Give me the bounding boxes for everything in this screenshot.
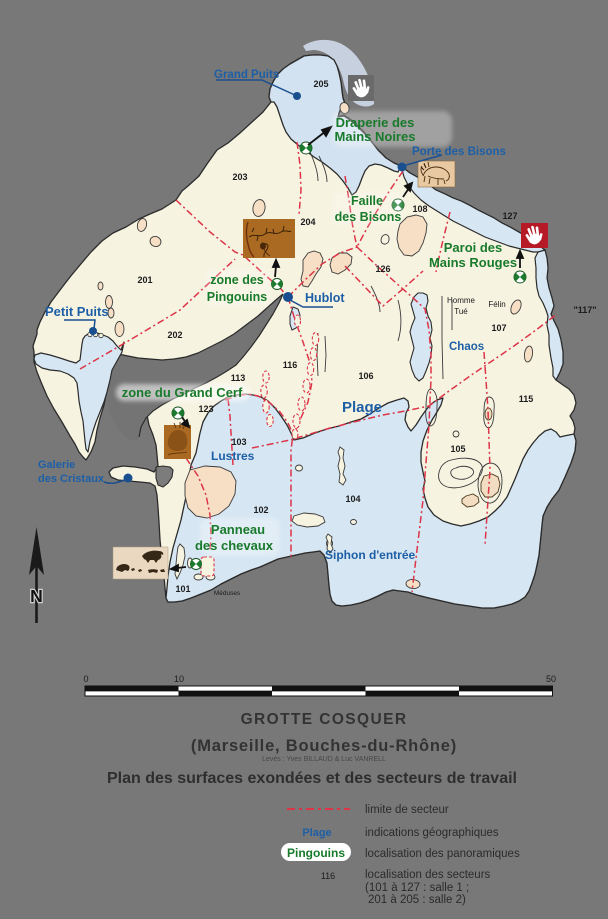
- svg-text:Grand Puits: Grand Puits: [214, 69, 279, 81]
- svg-text:Pingouins: Pingouins: [287, 846, 345, 860]
- svg-text:116: 116: [321, 871, 335, 881]
- svg-text:Chaos: Chaos: [449, 341, 484, 353]
- svg-text:202: 202: [167, 330, 182, 340]
- svg-text:Levés : Yves BILLAUD & Luc VAN: Levés : Yves BILLAUD & Luc VANRELL: [262, 756, 386, 763]
- svg-text:Mains Noires: Mains Noires: [335, 129, 416, 144]
- svg-text:limite de secteur: limite de secteur: [365, 804, 449, 816]
- svg-text:des chevaux: des chevaux: [195, 538, 274, 553]
- svg-text:105: 105: [450, 444, 465, 454]
- svg-text:"117": "117": [573, 305, 596, 315]
- svg-text:203: 203: [232, 172, 247, 182]
- svg-text:indications géographiques: indications géographiques: [365, 827, 499, 839]
- svg-text:Plage: Plage: [302, 827, 331, 839]
- svg-text:Pingouins: Pingouins: [207, 290, 267, 304]
- svg-text:Siphon d'entrée: Siphon d'entrée: [325, 548, 416, 562]
- svg-text:Plan des surfaces exondées et: Plan des surfaces exondées et des secteu…: [107, 770, 517, 787]
- svg-text:101: 101: [175, 584, 190, 594]
- svg-text:N: N: [30, 586, 43, 606]
- svg-text:Mains Rouges: Mains Rouges: [429, 255, 517, 270]
- svg-text:123: 123: [198, 404, 213, 414]
- svg-text:Tué: Tué: [454, 307, 468, 316]
- svg-text:113: 113: [231, 373, 246, 383]
- svg-text:Hublot: Hublot: [305, 291, 345, 305]
- svg-text:201: 201: [137, 275, 152, 285]
- svg-text:108: 108: [412, 204, 427, 214]
- svg-text:205: 205: [313, 79, 328, 89]
- svg-text:localisation des secteurs: localisation des secteurs: [365, 869, 491, 881]
- svg-text:Panneau: Panneau: [211, 522, 265, 537]
- svg-text:107: 107: [491, 323, 506, 333]
- svg-text:126: 126: [375, 264, 390, 274]
- svg-text:Draperie des: Draperie des: [336, 115, 415, 130]
- svg-text:116: 116: [283, 360, 298, 370]
- svg-text:zone du Grand Cerf: zone du Grand Cerf: [122, 385, 243, 400]
- svg-text:Méduses: Méduses: [214, 590, 241, 597]
- svg-text:Homme: Homme: [447, 296, 476, 305]
- svg-text:zone des: zone des: [210, 273, 264, 287]
- svg-text:106: 106: [358, 371, 373, 381]
- svg-text:Lustres: Lustres: [211, 449, 255, 463]
- svg-text:(101 à 127 : salle 1 ;: (101 à 127 : salle 1 ;: [365, 882, 469, 894]
- svg-text:localisation des panoramiques: localisation des panoramiques: [365, 848, 520, 860]
- svg-text:Félin: Félin: [488, 300, 505, 309]
- svg-text:204: 204: [300, 217, 315, 227]
- svg-text:104: 104: [345, 494, 360, 504]
- svg-text:Porte des Bisons: Porte des Bisons: [412, 146, 506, 158]
- svg-text:des Cristaux: des Cristaux: [38, 473, 105, 485]
- svg-text:10: 10: [174, 674, 184, 684]
- svg-text:Faille: Faille: [351, 194, 383, 208]
- svg-text:Paroi des: Paroi des: [444, 240, 503, 255]
- svg-text:127: 127: [502, 211, 517, 221]
- svg-text:Plage: Plage: [342, 399, 382, 416]
- svg-text:50: 50: [546, 674, 556, 684]
- svg-text:0: 0: [83, 674, 88, 684]
- svg-text:103: 103: [231, 437, 246, 447]
- svg-text:GROTTE COSQUER: GROTTE COSQUER: [241, 711, 408, 728]
- svg-text:115: 115: [519, 394, 534, 404]
- svg-text:(Marseille, Bouches-du-Rhône): (Marseille, Bouches-du-Rhône): [191, 737, 457, 755]
- svg-text:Galerie: Galerie: [38, 459, 75, 471]
- svg-text:201 à 205 : salle 2): 201 à 205 : salle 2): [368, 894, 466, 906]
- svg-text:des Bisons: des Bisons: [335, 210, 402, 224]
- svg-text:Petit Puits: Petit Puits: [45, 304, 109, 319]
- svg-text:102: 102: [253, 505, 268, 515]
